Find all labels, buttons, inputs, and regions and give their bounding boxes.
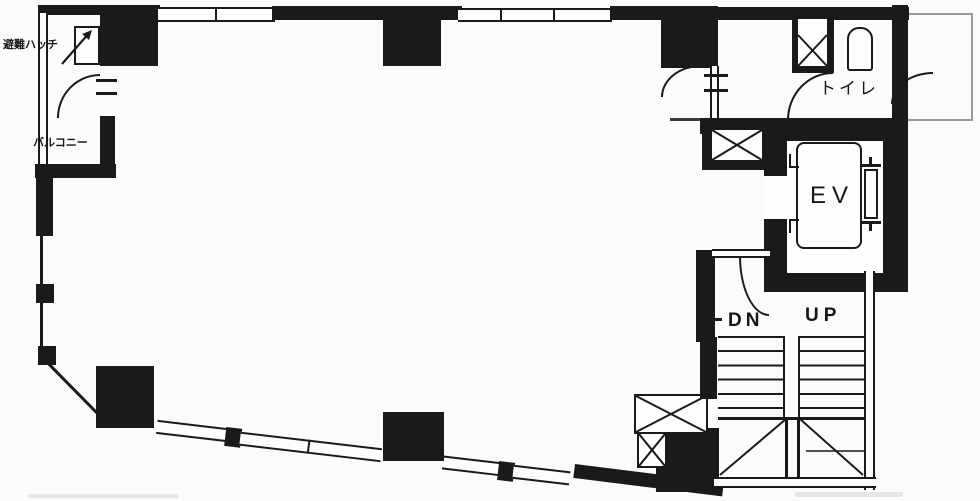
window-mullion [553,8,555,22]
window-bottom [442,456,500,477]
window-top-mid [458,8,612,22]
elevator-door-opening [764,176,788,219]
column [661,6,718,68]
elevator-door-jamb-icon [789,154,799,168]
room-door-arc-icon [661,65,701,97]
escape-hatch-label: 避難ハッチ [3,40,58,51]
wall-left-diagonal [44,359,99,415]
column-large [383,412,444,461]
window-bottom [156,420,227,442]
door-threshold-tick [709,318,722,321]
scan-noise [28,494,178,498]
stair-wall-left [700,337,717,399]
common-corridor-outline [898,13,973,121]
column [100,9,158,66]
elevator-label: EV [804,184,854,208]
column [383,16,441,66]
column-large [96,366,154,428]
stairs-up-label: UP [805,306,841,325]
counterweight-tick [869,223,872,231]
elevator-counterweight-icon [864,169,878,219]
door-threshold-tick [704,74,728,77]
stair-landing-column [696,250,715,342]
stair-door-arc-icon [739,256,769,316]
hatch-arrow-icon [56,26,98,68]
elevator-cab: EV [796,142,862,249]
pipe-shaft-icon [634,394,708,434]
window-bottom [239,432,382,462]
balcony-inner-wall [100,116,115,168]
stair-center-wall [783,336,800,421]
balcony-label: バルコニー [33,138,88,149]
stairs-down-label: DN [728,311,763,330]
window-mullion [500,8,502,22]
balcony-door-arc-icon [57,74,100,118]
toilet-fixture-icon [847,27,873,71]
stair-winder-lines [716,416,866,478]
door-threshold-tick [704,89,728,92]
window-mullion [215,7,217,22]
stair-wall-bottom [714,477,876,488]
wall-left [36,168,53,236]
counterweight-tick [869,157,872,165]
window-top-left [157,7,275,22]
column-small [36,284,54,303]
floor-plan: 避難ハッチ バルコニー [0,0,980,501]
pipe-shaft-icon [712,130,762,160]
window-mullion [307,440,311,454]
window-bottom [512,465,570,486]
toilet-label: トイレ [819,80,879,97]
pipe-shaft-icon [637,432,667,468]
pipe-shaft-icon [798,35,827,66]
elevator-door-jamb-icon [789,219,799,233]
scan-noise [795,492,903,497]
